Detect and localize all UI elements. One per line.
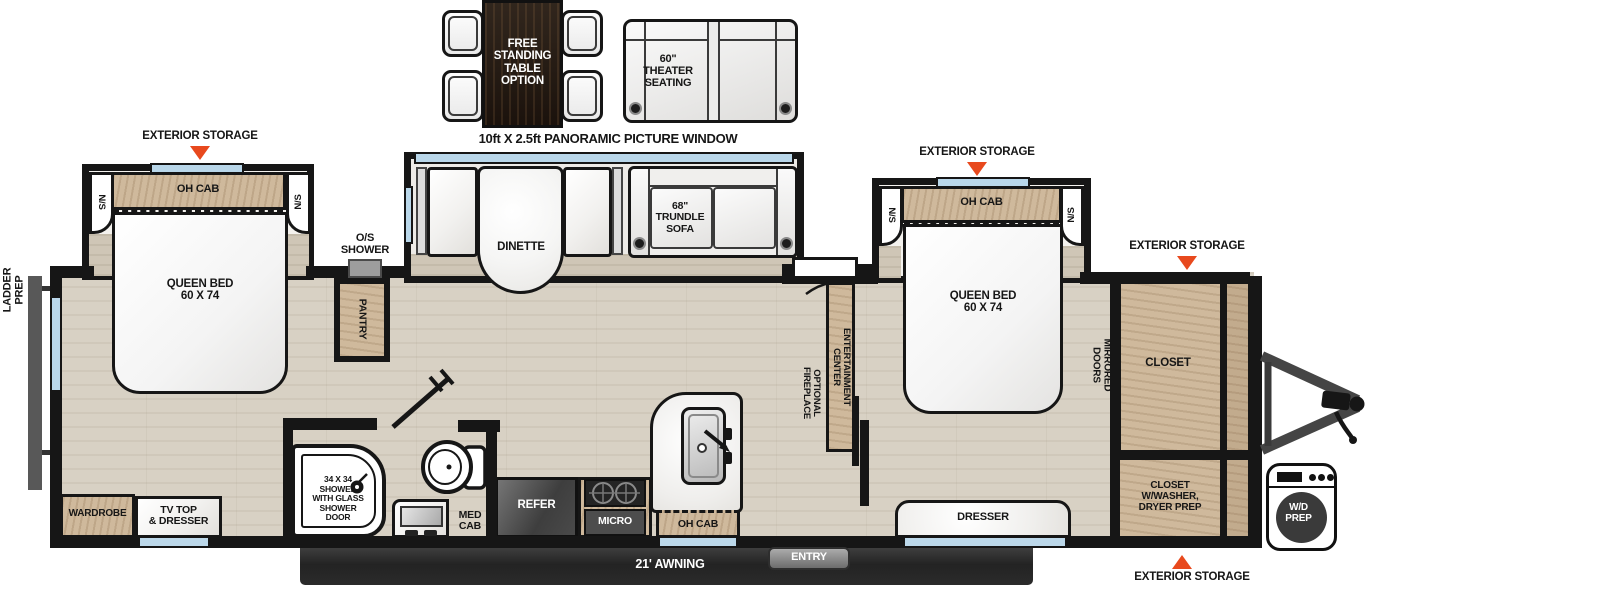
window (660, 538, 736, 546)
dining-chair (442, 70, 484, 122)
tv-dresser-label: TV TOP & DRESSER (135, 505, 222, 528)
theater-console (707, 22, 720, 120)
closet-column (1227, 282, 1248, 538)
window (905, 538, 1065, 546)
dining-chair (442, 10, 484, 57)
kitchen-oh-cab-label: OH CAB (656, 519, 740, 530)
microwave-label: MICRO (584, 516, 646, 527)
top-wall-segment (50, 266, 94, 278)
cooktop (584, 479, 646, 507)
dinette-bench (427, 167, 478, 257)
washer-knob (1327, 474, 1334, 481)
closet-divider (1220, 282, 1227, 538)
free-standing-table-label: FREE STANDING TABLE OPTION (482, 38, 563, 88)
rear-window (50, 296, 62, 392)
refrigerator-label: REFER (495, 499, 578, 511)
dinette-table (477, 166, 564, 294)
dinette-bench (563, 167, 612, 257)
trundle-sofa-label: 68" TRUNDLE SOFA (640, 201, 720, 235)
dresser-label: DRESSER (895, 512, 1071, 524)
panoramic-window-note: 10ft X 2.5ft PANORAMIC PICTURE WINDOW (408, 132, 808, 146)
front-queen-bed (903, 224, 1063, 414)
rv-floorplan: FREE STANDING TABLE OPTION 60" THEATER S… (0, 0, 1600, 593)
washer-control-panel (1277, 472, 1302, 482)
rear-queen-bed (112, 212, 288, 394)
window (150, 163, 244, 174)
bathroom-wall (283, 418, 293, 538)
exterior-storage-label: EXTERIOR STORAGE (1112, 571, 1272, 583)
exterior-storage-label: EXTERIOR STORAGE (1107, 240, 1267, 252)
nightstand-label: N/S (886, 207, 896, 222)
ladder-prep-label: LADDER PREP (2, 268, 25, 313)
nightstand-label: N/S (294, 194, 304, 209)
rear-ladder (28, 276, 42, 490)
shower-label: 34 X 34 SHOWER WITH GLASS SHOWER DOOR (297, 475, 379, 523)
pantry-label: PANTRY (356, 299, 367, 340)
wd-prep-label: W/D PREP (1273, 503, 1324, 525)
bathroom-wall (283, 418, 377, 430)
cup-holder (779, 102, 792, 115)
bottom-wall (50, 536, 1262, 548)
closet-wall (1110, 450, 1120, 538)
cup-holder (780, 237, 793, 250)
front-oh-cab-label: OH CAB (901, 197, 1062, 209)
vanity-mirror (400, 506, 443, 527)
washer-panel-line (1269, 486, 1334, 488)
front-queen-bed-label: QUEEN BED 60 X 74 (923, 290, 1043, 315)
rear-queen-bed-label: QUEEN BED 60 X 74 (140, 278, 260, 303)
theater-seating-label: 60" THEATER SEATING (630, 54, 706, 90)
dinette-panel (612, 167, 623, 255)
washer-knob (1309, 474, 1316, 481)
front-wall (1248, 276, 1262, 548)
nightstand-label: N/S (1067, 207, 1077, 222)
dining-chair (561, 10, 603, 57)
sink-drain (697, 443, 707, 453)
sofa-seat (713, 187, 776, 249)
awning-label: 21' AWNING (560, 558, 780, 572)
outside-shower-label: O/S SHOWER (323, 233, 407, 257)
dining-chair (561, 70, 603, 122)
cup-holder (629, 102, 642, 115)
exterior-storage-marker (967, 162, 987, 176)
tv-mount (852, 396, 859, 466)
trailer-tongue (1262, 356, 1365, 450)
outside-shower (348, 259, 382, 278)
exterior-storage-marker (190, 146, 210, 160)
exterior-storage-marker (1172, 555, 1192, 569)
bath-vanity (392, 499, 449, 538)
entry-label: ENTRY (768, 552, 850, 564)
med-cab-label: MED CAB (447, 510, 493, 533)
washer-dryer-closet-label: CLOSET W/WASHER, DRYER PREP (1122, 481, 1218, 513)
dinette-label: DINETTE (486, 241, 556, 253)
closet-wall (1110, 450, 1250, 460)
bedroom-door-panel (792, 257, 858, 279)
entertainment-center-label: ENTERTAINMENT CENTER (831, 328, 851, 406)
wardrobe-label: WARDROBE (60, 509, 135, 520)
theater-armrest-line (775, 22, 777, 120)
slide-floor (879, 246, 901, 278)
nightstand-label: N/S (96, 194, 106, 209)
mirrored-doors-label: MIRRORED DOORS (1091, 339, 1112, 392)
exterior-storage-label: EXTERIOR STORAGE (120, 130, 280, 142)
exterior-storage-marker (1177, 256, 1197, 270)
cup-holder (633, 237, 646, 250)
bedroom-partition (860, 420, 869, 506)
window (936, 177, 1030, 188)
panoramic-window (414, 152, 794, 164)
dinette-panel (416, 167, 427, 255)
exterior-storage-label: EXTERIOR STORAGE (897, 146, 1057, 158)
closet-label: CLOSET (1128, 357, 1208, 369)
optional-fireplace-label: OPTIONAL FIREPLACE (801, 367, 821, 419)
window (140, 538, 208, 546)
rear-oh-cab-label: OH CAB (110, 184, 286, 196)
washer-knob (1318, 474, 1325, 481)
kitchen-sink (681, 407, 726, 485)
